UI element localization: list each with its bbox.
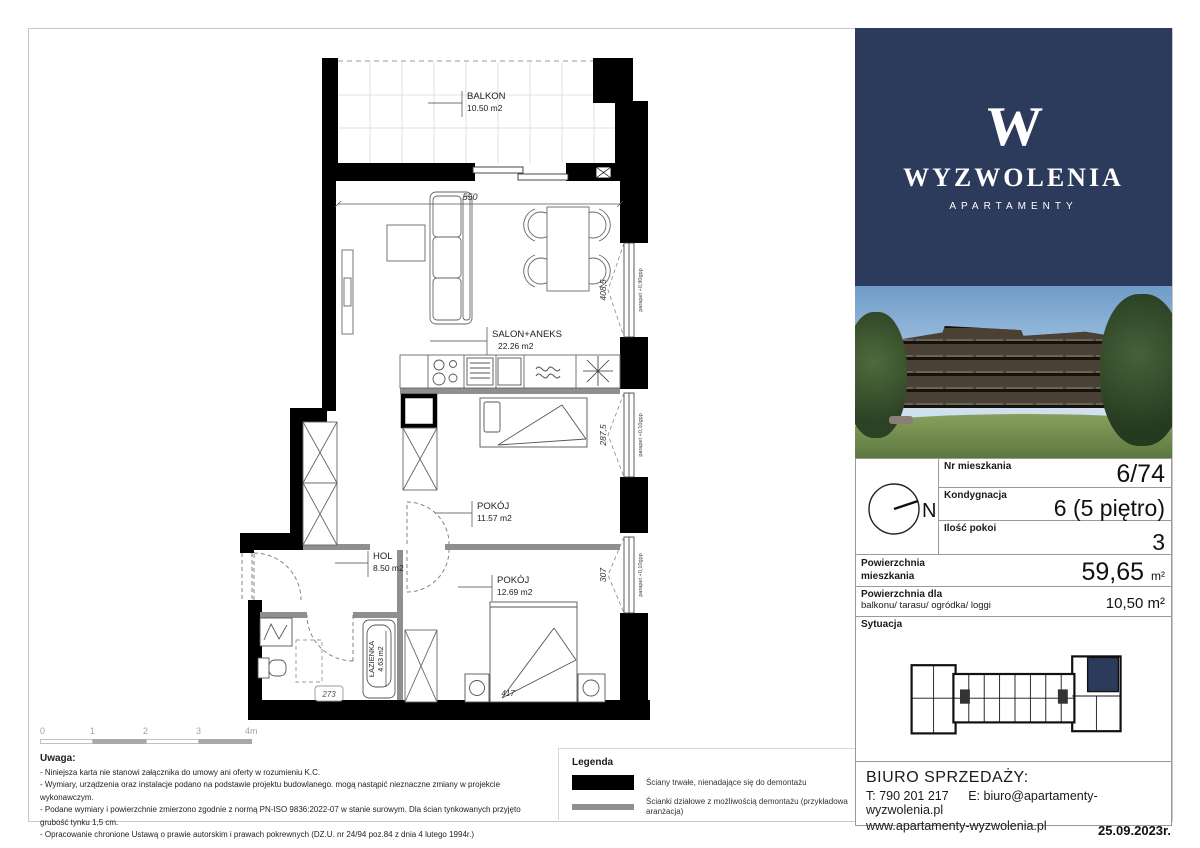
info-row-rooms: Ilość pokoi 3 [939,521,1171,554]
divider-horizontal [558,748,855,749]
car [889,416,913,424]
tree-right [1100,294,1172,446]
room-name: SALON+ANEKS [492,329,562,340]
scale-bar-segments [40,739,252,744]
area-label-line2: mieszkania [861,571,914,582]
solid-wall-swatch [572,775,634,790]
parapet-salon: parapet +0,90gpp [638,268,644,311]
dim-pokoj2-window: 307 [598,568,608,582]
note-item: - Opracowanie chronione Ustawą o prawie … [40,829,548,841]
area-label-line1: Powierzchnia [861,558,925,569]
room-area: 8.50 m2 [373,563,404,573]
balcony-area-value: 10,50 m² [1106,595,1165,612]
area-value: 59,65 m² [1081,560,1165,585]
scale-label: 0 [40,726,45,736]
balcony-door [473,167,568,180]
compass-cell: N [856,459,939,554]
dim-door: 273 [321,690,336,699]
scale-label: 3 [196,726,201,736]
room-name: POKÓJ [497,575,529,586]
scale-label: 2 [143,726,148,736]
notes-title: Uwaga: [40,753,548,764]
situation-map [900,641,1130,751]
scale-segment [40,739,93,744]
room-area: 4.63 m2 [378,646,385,671]
info-row-label: Ilość pokoi [944,523,996,534]
dim-salon-window: 408,5 [598,279,608,301]
info-row-area: Powierzchnia mieszkania 59,65 m² [856,554,1171,587]
info-row-balcony-area: Powierzchnia dla balkonu/ tarasu/ ogródk… [856,587,1171,617]
room-name: ŁAZIENKA [367,641,376,677]
brand-name: WYZWOLENIA [903,163,1124,193]
info-row-value: 6/74 [1116,462,1165,487]
parapet-pokoj2: parapet +0,10gpp [638,553,644,596]
scale-label: 1 [90,726,95,736]
label-pokoj1: POKÓJ 11.57 m2 [435,501,512,527]
situation-cell: Sytuacja [856,617,1171,762]
sales-office-title: BIURO SPRZEDAŻY: [866,769,1161,787]
floor-plan: 550 408,5 parapet +0,90gpp 287,5 parapet… [30,28,855,728]
info-row-label: Nr mieszkania [944,461,1011,472]
dim-pokoj1-window: 287,5 [598,424,608,447]
brand-header: W WYZWOLENIA APARTAMENTY [855,28,1172,286]
area-label: Powierzchnia mieszkania [861,558,925,583]
shaft-box [403,396,435,426]
office-phone: T: 790 201 217 [866,789,949,803]
divider-vertical [558,748,559,820]
info-row-floor: Kondygnacja 6 (5 piętro) [939,488,1171,521]
area-value-unit: m² [1151,569,1165,583]
tv-cabinet [342,250,353,334]
note-item: - Niniejsza karta nie stanowi załącznika… [40,767,548,779]
stair-core [1058,689,1068,703]
sofa [430,192,472,324]
scale-segment [93,739,146,744]
legend-block: Legenda Ściany trwałe, nienadające się d… [572,757,850,823]
note-item: - Podane wymiary i powierzchnie zmierzon… [40,804,548,829]
room-area: 12.69 m2 [497,587,533,597]
partition-wall-swatch [572,804,634,810]
compass-north-label: N [922,500,936,522]
window-opening-lines [608,243,624,613]
situation-label: Sytuacja [861,619,902,630]
coffee-table [387,225,425,261]
dim-door-box: 273 [315,686,343,701]
dim-bed: 417 [501,689,515,698]
legend-item-label: Ścianki działowe z możliwością demontażu… [646,797,850,816]
electrical-box [260,618,292,646]
legend-item-label: Ściany trwałe, nienadające się do demont… [646,778,807,788]
parapet-pokoj1: parapet +0,10gpp [638,413,644,456]
sales-office-block: BIURO SPRZEDAŻY: T: 790 201 217 E: biuro… [856,762,1171,825]
brand-monogram: W [984,102,1044,152]
legend-item: Ściany trwałe, nienadające się do demont… [572,775,850,790]
light-point-icon [583,356,613,386]
info-row-label: Kondygnacja [944,490,1007,501]
info-row-value: 6 (5 piętro) [1054,497,1165,520]
shaft-hatch [596,167,611,178]
north-compass-icon: N [856,459,938,554]
scale-label: 4m [245,726,258,736]
scale-segment [146,739,199,744]
dining-set [524,207,611,291]
info-row-value: 3 [1152,531,1165,554]
building-photo [855,286,1172,458]
label-pokoj2: POKÓJ 12.69 m2 [458,575,533,601]
brand-subtitle: APARTAMENTY [949,201,1077,212]
info-row-number: Nr mieszkania 6/74 [939,459,1171,488]
single-bed [480,398,587,447]
legend-item: Ścianki działowe z możliwością demontażu… [572,797,850,816]
legend-title: Legenda [572,757,850,768]
balcony-area-label: Powierzchnia dla balkonu/ tarasu/ ogródk… [861,589,991,611]
label-hol: HOL 8.50 m2 [335,551,404,577]
room-name: HOL [373,551,393,562]
room-area: 11.57 m2 [477,513,512,523]
scale-bar: 0 1 2 3 4m [40,726,260,748]
building-render [883,326,1121,408]
stair-core [960,689,970,703]
label-salon: SALON+ANEKS 22.26 m2 [430,327,562,355]
scale-segment [199,739,252,744]
windows [624,243,634,613]
note-item: - Wymiary, urządzenia oraz instalacje po… [40,779,548,804]
dim-salon-width: 550 [335,192,623,207]
room-name: POKÓJ [477,501,509,512]
info-panel: W WYZWOLENIA APARTAMENTY N [855,28,1172,820]
highlighted-unit [1088,658,1119,692]
area-value-number: 59,65 [1081,558,1144,586]
apartment-info-table: N Nr mieszkania 6/74 Kondygnacja 6 (5 pi… [855,458,1172,826]
document-date: 25.09.2023r. [900,823,1171,838]
notes-block: Uwaga: - Niniejsza karta nie stanowi zał… [40,753,548,841]
dim-550: 550 [462,192,477,202]
brochure-page: 550 408,5 parapet +0,90gpp 287,5 parapet… [0,0,1200,848]
room-area: 10.50 m2 [467,103,503,113]
room-name: BALKON [467,91,506,102]
washer-slot [296,640,322,682]
room-area: 22.26 m2 [498,341,534,351]
toilet [258,658,286,678]
balcony-label-line2: balkonu/ tarasu/ ogródka/ loggi [861,600,991,611]
balcony-label-line1: Powierzchnia dla [861,589,942,600]
double-bed [465,602,605,702]
